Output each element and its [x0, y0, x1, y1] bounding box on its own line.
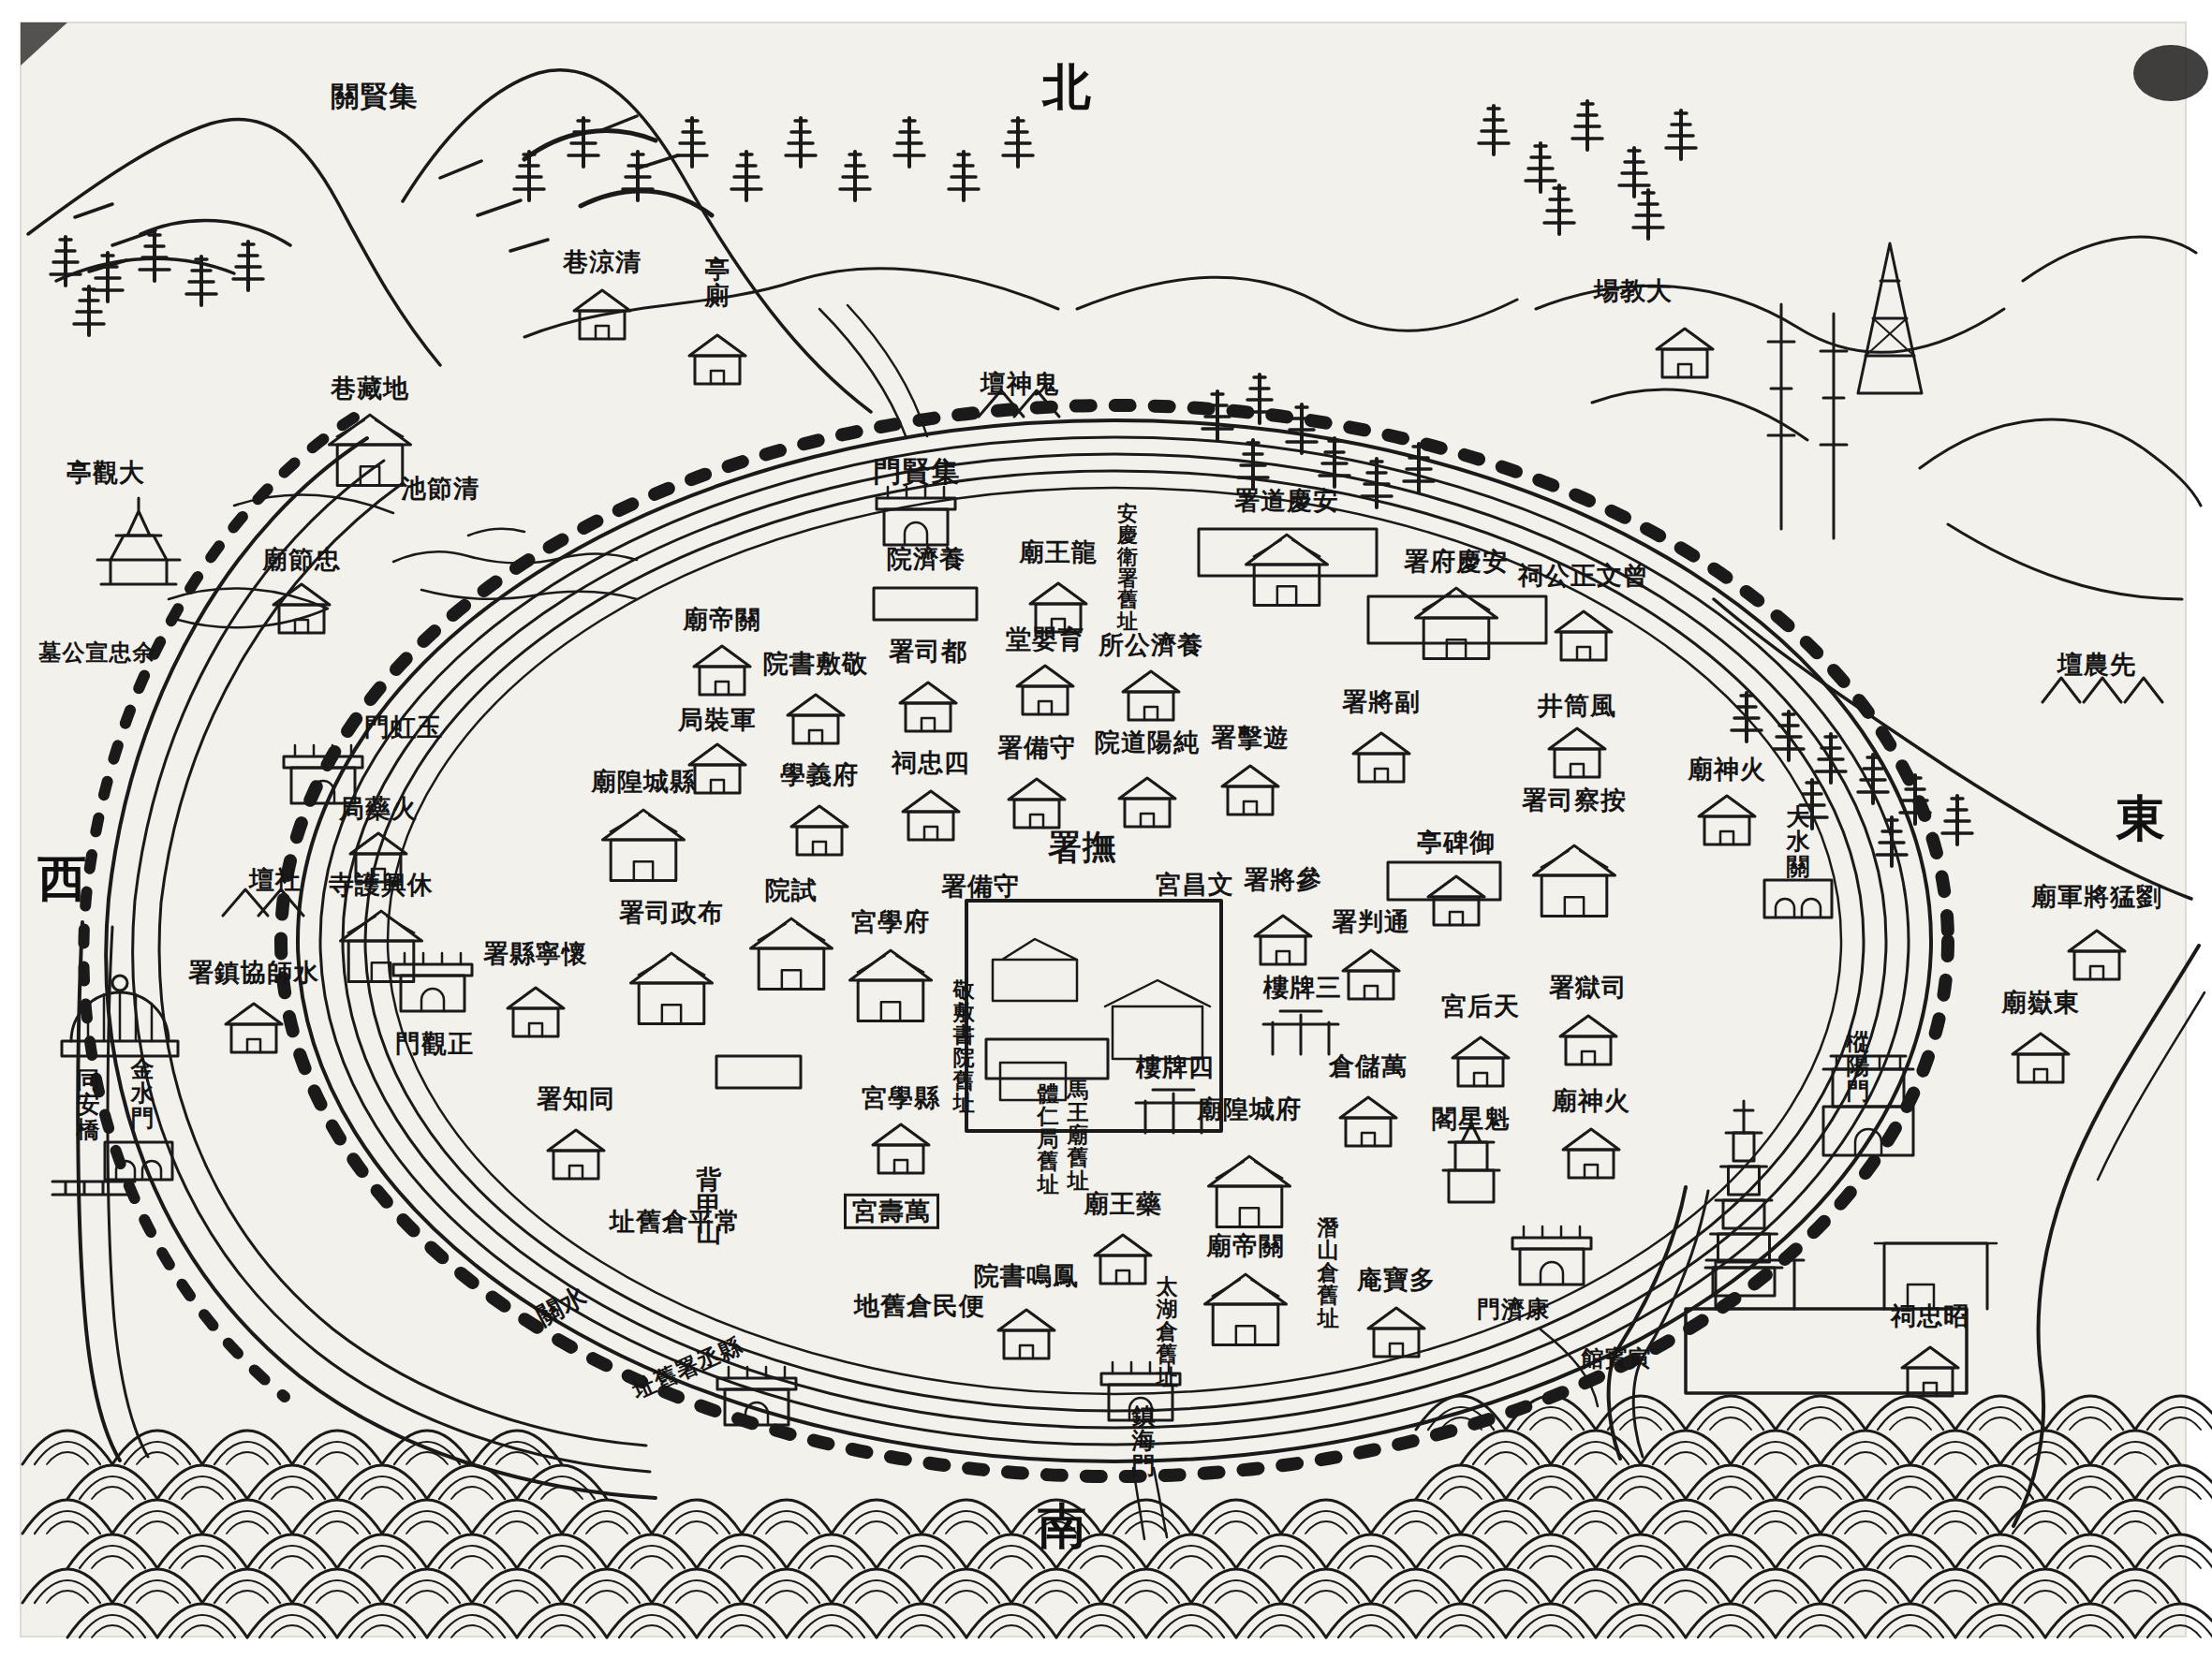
label-anqingfushu: 署府慶安	[1404, 549, 1509, 575]
label-guandimiao-west: 廟帝關	[683, 607, 761, 633]
label-shuiguan: 關水	[533, 1282, 592, 1329]
label-guishentan: 壇神鬼	[981, 371, 1059, 397]
label-sizhongci: 祠忠四	[892, 750, 970, 776]
label-longwangmiao: 廟王龍	[1019, 539, 1098, 565]
label-jixianguan: 關賢集	[332, 81, 419, 111]
label-huoshenmiao-wai: 廟神火	[1688, 756, 1766, 783]
label-beijiashan: 背甲山	[697, 1167, 722, 1246]
label-xianchenghuangmiao: 廟隍城縣	[591, 769, 696, 795]
label-zongyangmen: 樅陽門	[1847, 1030, 1870, 1104]
label-sanpailou: 樓牌三	[1263, 975, 1342, 1001]
label-daguanting: 亭觀大	[66, 460, 145, 486]
label-yangjigongsuo: 所公濟養	[1099, 632, 1203, 658]
label-wanshougong: 宮壽萬	[844, 1194, 939, 1229]
label-tingce: 亭廁	[705, 257, 730, 310]
label-anchasishu: 署司察按	[1522, 787, 1627, 814]
direction-marker-west: 西	[37, 846, 86, 912]
label-qingliangxiang: 巷涼清	[563, 249, 641, 275]
label-siyushu: 署獄司	[1549, 975, 1628, 1001]
label-guandimiao-dong: 廟帝關	[1206, 1233, 1285, 1259]
label-qianshancang-jiuzhi: 潛山倉舊址	[1318, 1216, 1339, 1329]
label-shoubeishu-2: 署備守	[941, 874, 1020, 900]
label-dicangxiang: 巷藏地	[331, 375, 409, 402]
label-jinshuimen: 金水門	[131, 1057, 155, 1131]
label-wanchucang: 倉儲萬	[1329, 1053, 1408, 1079]
label-buzhengsishu: 署司政布	[619, 900, 724, 926]
label-xiuxinghusi: 寺護興休	[329, 872, 434, 898]
label-zhaozhongci: 祠忠昭	[1891, 1303, 1969, 1329]
label-yaowangmiao: 廟王藥	[1084, 1191, 1162, 1217]
label-wenchanggong: 宮昌文	[1156, 872, 1234, 898]
label-shiyuan: 院試	[765, 877, 818, 903]
label-shuishixiezhenshu: 署鎮協師水	[188, 960, 319, 986]
label-zengwenzhenggongci: 祠公正文曾	[1518, 563, 1649, 589]
label-yuhongmen: 門虹玉	[364, 714, 443, 741]
label-dashuiguan: 大水關	[1787, 805, 1810, 879]
label-jingfushuyuan-jiuzhi: 敬敷書院舊址	[953, 978, 975, 1114]
label-taihucang-jiuzhi: 太湖倉舊址	[1157, 1275, 1178, 1388]
direction-marker-east: 東	[2116, 786, 2165, 852]
label-xianxuegong: 宮學縣	[862, 1085, 940, 1111]
label-fuxuegong: 宮學府	[851, 909, 930, 935]
label-huainingxianshu: 署縣寧懷	[483, 941, 588, 967]
label-anqingweishu-jiuzhi: 安慶衛署舊址	[1117, 503, 1138, 633]
label-tongzhishu: 署知同	[537, 1086, 615, 1112]
label-fengtongjing: 井筒風	[1538, 693, 1616, 719]
label-shoubeishu-1: 署備守	[997, 735, 1076, 761]
label-bianmincang-jiudi: 地舊倉民便	[854, 1293, 985, 1319]
label-fengmingshuyuan: 院書鳴鳳	[974, 1263, 1079, 1289]
label-canjiangshu: 署將參	[1244, 867, 1322, 893]
label-junzhuangju: 局裝軍	[678, 707, 757, 733]
label-zhongjiemiao: 廟節忠	[262, 547, 341, 573]
label-shetan: 壇社	[249, 867, 302, 893]
label-xiannongtan: 壇農先	[2057, 652, 2136, 678]
label-huoyaoju: 局藥火	[339, 796, 418, 822]
label-tirenju-jiuzhi: 體仁局舊址	[1038, 1082, 1059, 1196]
label-jixianmen: 門賢集	[874, 457, 961, 487]
label-chunyangdaoyuan: 院道陽純	[1095, 729, 1200, 756]
direction-marker-north: 北	[1042, 55, 1091, 121]
label-tianhougong: 宮后天	[1441, 993, 1520, 1020]
label-yuyingtang: 堂嬰育	[1006, 626, 1084, 653]
label-anqingdaoshu: 署道慶安	[1234, 488, 1339, 514]
label-dongyuemiao: 廟嶽東	[2001, 990, 2080, 1016]
label-zhenhaimen: 鎮海門	[1132, 1404, 1156, 1478]
label-yuzhongxuangongmu: 墓公宣忠余	[39, 640, 156, 664]
label-duobaoan: 庵寶多	[1357, 1267, 1436, 1293]
label-sipailou: 樓牌四	[1136, 1054, 1215, 1080]
label-mawangmiao-jiuzhi: 馬王廟舊址	[1068, 1079, 1089, 1192]
label-fushu: 署撫	[1048, 829, 1117, 865]
label-kuixingge: 閣星魁	[1432, 1106, 1511, 1132]
label-xianchengshu-jiuzhi: 址舊署丞縣	[629, 1333, 745, 1402]
label-youjishu: 署擊遊	[1211, 725, 1290, 751]
direction-marker-south: 南	[1038, 1494, 1086, 1560]
place-labels: 關賢集巷涼清亭廁巷藏地池節清亭觀大廟節忠墓公宣忠余同安橋金水門壇神鬼門賢集門虹玉…	[0, 0, 2212, 1659]
label-yangjiyuan: 院濟養	[887, 546, 966, 572]
label-liumengjiangjunmiao: 廟軍將猛劉	[2031, 884, 2162, 910]
label-fuyixue: 學義府	[780, 762, 859, 788]
label-tonganqiao: 同安橋	[77, 1068, 100, 1142]
label-fujiangshu: 署將副	[1342, 689, 1421, 715]
label-dajiaochang: 場教大	[1594, 278, 1673, 304]
label-yubeiting: 亭碑御	[1417, 829, 1496, 856]
label-jingfushuyuan: 院書敷敬	[763, 651, 868, 677]
label-kangjimen: 門濟康	[1477, 1298, 1550, 1322]
label-fuchenghuangmiao: 廟隍城府	[1197, 1096, 1302, 1123]
label-zhengguanmen: 門觀正	[395, 1031, 474, 1057]
label-qingjiechi: 池節清	[401, 476, 479, 502]
city-map: 關賢集巷涼清亭廁巷藏地池節清亭觀大廟節忠墓公宣忠余同安橋金水門壇神鬼門賢集門虹玉…	[0, 0, 2212, 1659]
label-tongpanshu: 署判通	[1332, 909, 1410, 935]
label-dusishu: 署司都	[889, 639, 967, 665]
label-huoshenmiao-nei: 廟神火	[1552, 1088, 1630, 1114]
label-yinbinguan: 館賓寅	[1582, 1346, 1652, 1370]
